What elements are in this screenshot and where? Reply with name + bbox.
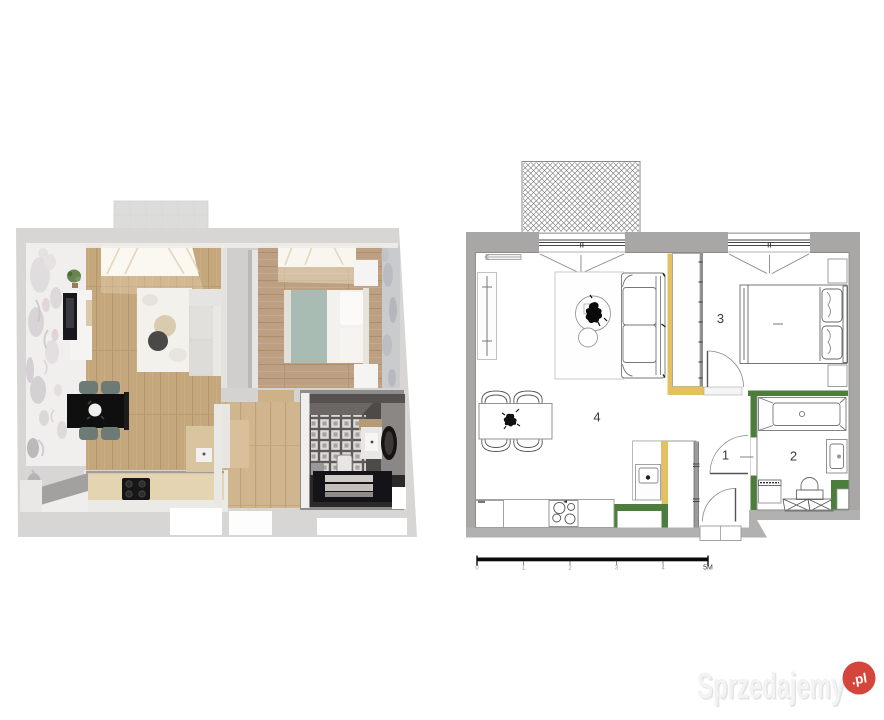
svg-text:1: 1 (722, 448, 729, 463)
svg-text:2: 2 (790, 449, 797, 464)
svg-text:5M: 5M (703, 565, 713, 572)
svg-text:1: 1 (522, 566, 526, 572)
svg-text:2: 2 (568, 566, 572, 572)
svg-text:.pl: .pl (850, 670, 868, 687)
svg-text:4: 4 (593, 410, 600, 425)
svg-text:0: 0 (475, 566, 479, 572)
svg-text:4: 4 (661, 566, 665, 572)
svg-text:3: 3 (615, 566, 619, 572)
svg-text:Sprzedajemy: Sprzedajemy (697, 665, 844, 706)
svg-text:3: 3 (717, 311, 724, 326)
